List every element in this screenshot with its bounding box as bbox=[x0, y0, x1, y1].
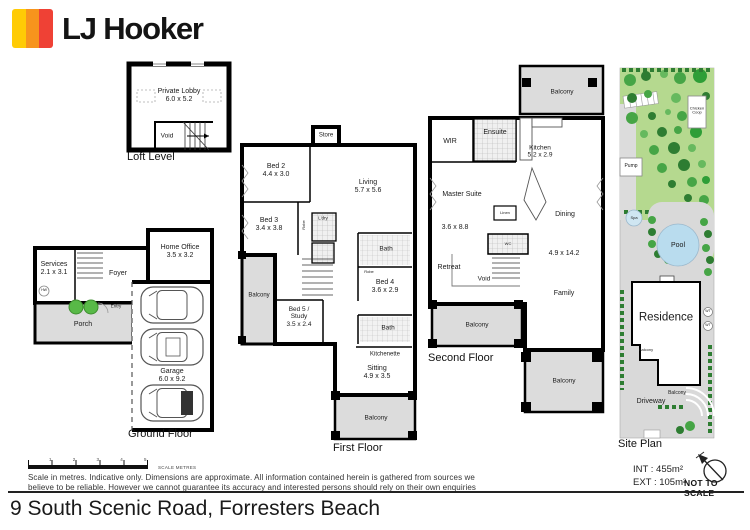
scale-caption: SCALE METRES bbox=[158, 465, 196, 470]
scale-bar: 1 2 3 4 5 SCALE METRES bbox=[28, 457, 218, 473]
room-dims: 4.9 x 3.5 bbox=[364, 373, 391, 381]
room-label-bath-upper: Bath bbox=[379, 245, 392, 252]
site-label-pump: Pump bbox=[624, 164, 637, 170]
car-icon bbox=[141, 329, 203, 365]
room-label-family-dims: 4.9 x 14.2 bbox=[549, 250, 580, 258]
room-label-bath-lower: Bath bbox=[381, 324, 394, 331]
porch-plant-icon bbox=[69, 300, 83, 314]
plan-title-loft: Loft Level bbox=[127, 151, 175, 163]
room-label-kitchen: Kitchen 5.2 x 2.9 bbox=[528, 145, 553, 160]
logo-stripe-orange bbox=[26, 9, 40, 48]
room-name: Living bbox=[355, 179, 382, 187]
room-dims: 3.6 x 2.9 bbox=[372, 287, 399, 295]
room-name: Bed 3 bbox=[256, 217, 283, 225]
logo-stripes-icon bbox=[12, 9, 53, 48]
room-label-wc: WC bbox=[505, 242, 512, 246]
room-label-store: Store bbox=[319, 133, 333, 140]
room-label-bed4: Bed 4 3.6 x 2.9 bbox=[372, 279, 399, 295]
room-label-hw: HW bbox=[41, 289, 47, 293]
room-dims: 3.5 x 2.4 bbox=[287, 321, 312, 328]
room-label-balcony-bottom: Balcony bbox=[552, 377, 575, 384]
room-name: Home Office bbox=[161, 244, 200, 252]
room-label-bed3: Bed 3 3.4 x 3.8 bbox=[256, 217, 283, 233]
room-label-master-dims: 3.6 x 8.8 bbox=[442, 224, 469, 232]
disclaimer: Scale in metres. Indicative only. Dimens… bbox=[28, 473, 476, 493]
logo-stripe-yellow bbox=[12, 9, 26, 48]
room-label-services: Services 2.1 x 3.1 bbox=[41, 261, 68, 277]
room-name: Services bbox=[41, 261, 68, 269]
site-label-residence: Residence bbox=[639, 312, 693, 325]
room-name: Bed 5 / bbox=[287, 306, 312, 313]
site-label-wt: WT bbox=[705, 310, 710, 314]
plan-second-floor: Balcony WIR Ensuite Kitchen 5.2 x 2.9 Ma… bbox=[428, 58, 625, 418]
room-label-linen: Linen bbox=[500, 211, 510, 215]
room-label-entry: Entry bbox=[111, 303, 122, 308]
site-label-line: Coop bbox=[690, 111, 704, 115]
room-label-home-office: Home Office 3.5 x 3.2 bbox=[161, 244, 200, 260]
room-name: Garage bbox=[159, 368, 186, 376]
room-label-private-lobby: Private Lobby 6.0 x 5.2 bbox=[158, 88, 201, 104]
car-icon bbox=[141, 287, 203, 323]
logo-stripe-red bbox=[39, 9, 53, 48]
room-label-balcony-bottom: Balcony bbox=[364, 414, 387, 421]
room-label-void: Void bbox=[478, 275, 491, 282]
plan-ground-floor: Home Office 3.5 x 3.2 Services 2.1 x 3.1… bbox=[28, 225, 228, 443]
site-label-balcony-left: Balcony bbox=[639, 348, 653, 352]
site-label-wt: WT bbox=[705, 324, 710, 328]
property-address: 9 South Scenic Road, Forresters Beach bbox=[10, 497, 380, 521]
room-label-robe: Robe bbox=[302, 220, 306, 230]
room-label-dining: Dining bbox=[555, 211, 575, 219]
room-label-bed2: Bed 2 4.4 x 3.0 bbox=[263, 163, 290, 179]
room-label-garage: Garage 6.0 x 9.2 bbox=[159, 368, 186, 384]
room-dims: 3.4 x 3.8 bbox=[256, 225, 283, 233]
room-label-balcony-left: Balcony bbox=[248, 293, 269, 300]
room-dims: 5.7 x 5.6 bbox=[355, 187, 382, 195]
room-label-living: Living 5.7 x 5.6 bbox=[355, 179, 382, 195]
room-label-family: Family bbox=[554, 290, 575, 298]
room-label-ldry: L'dry bbox=[318, 215, 328, 220]
disclaimer-line1: Scale in metres. Indicative only. Dimens… bbox=[28, 473, 476, 483]
plan-title-ground: Ground Floor bbox=[128, 428, 193, 440]
room-dims: 6.0 x 5.2 bbox=[158, 96, 201, 104]
room-dims: 5.2 x 2.9 bbox=[528, 152, 553, 159]
room-name: Study bbox=[287, 313, 312, 320]
room-label-retreat: Retreat bbox=[438, 264, 461, 272]
room-label-kitchenette: Kitchenette bbox=[370, 352, 400, 359]
floorplan-sheet: LJ Hooker Private Lobby 6.0 x 5.2 Void L… bbox=[0, 0, 750, 530]
site-label-pool: Pool bbox=[671, 242, 685, 250]
room-name: Bed 4 bbox=[372, 279, 399, 287]
plan-loft-level: Private Lobby 6.0 x 5.2 Void Loft Level bbox=[125, 60, 235, 165]
second-floor-walls bbox=[428, 58, 625, 418]
room-label-porch: Porch bbox=[74, 321, 92, 329]
room-label-balcony-top: Balcony bbox=[550, 88, 573, 95]
room-label-bed5-study: Bed 5 / Study 3.5 x 2.4 bbox=[287, 306, 312, 328]
site-label-spa: Spa bbox=[630, 216, 637, 220]
car-icon bbox=[141, 385, 203, 421]
loft-walls bbox=[125, 60, 235, 165]
plan-site: Chicken Coop Pump Spa Pool Residence Bal… bbox=[618, 60, 718, 452]
room-label-foyer: Foyer bbox=[109, 270, 127, 278]
room-name: Private Lobby bbox=[158, 88, 201, 96]
room-dims: 4.4 x 3.0 bbox=[263, 171, 290, 179]
site-label-driveway: Driveway bbox=[637, 398, 666, 406]
porch-plant-icon bbox=[84, 300, 98, 314]
room-label-wir: WIR bbox=[443, 138, 457, 146]
plan-title-second: Second Floor bbox=[428, 352, 493, 364]
area-ext: EXT : 105m² bbox=[633, 477, 686, 488]
room-label-void: Void bbox=[161, 132, 174, 139]
room-name: Bed 2 bbox=[263, 163, 290, 171]
room-label-robe: Robe bbox=[364, 270, 374, 274]
room-dims: 3.5 x 3.2 bbox=[161, 252, 200, 260]
room-name: Sitting bbox=[364, 365, 391, 373]
plan-title-first: First Floor bbox=[333, 442, 383, 454]
room-name: Kitchen bbox=[528, 145, 553, 152]
room-dims: 2.1 x 3.1 bbox=[41, 269, 68, 277]
plan-first-floor: Store Bed 2 4.4 x 3.0 Living 5.7 x 5.6 B… bbox=[238, 125, 428, 457]
room-dims: 6.0 x 9.2 bbox=[159, 376, 186, 384]
room-label-ensuite: Ensuite bbox=[483, 129, 506, 137]
area-int: INT : 455m² bbox=[633, 464, 683, 475]
brand-logo: LJ Hooker bbox=[12, 9, 203, 48]
room-label-master-suite: Master Suite bbox=[442, 191, 481, 199]
address-divider bbox=[8, 491, 744, 493]
site-label-chicken-coop: Chicken Coop bbox=[690, 107, 704, 116]
site-label-balcony-bottom: Balcony bbox=[668, 391, 686, 397]
room-label-sitting: Sitting 4.9 x 3.5 bbox=[364, 365, 391, 381]
plan-title-site: Site Plan bbox=[618, 438, 662, 450]
compass-icon bbox=[694, 450, 734, 488]
brand-name: LJ Hooker bbox=[62, 11, 203, 47]
room-label-balcony-left: Balcony bbox=[465, 321, 488, 328]
